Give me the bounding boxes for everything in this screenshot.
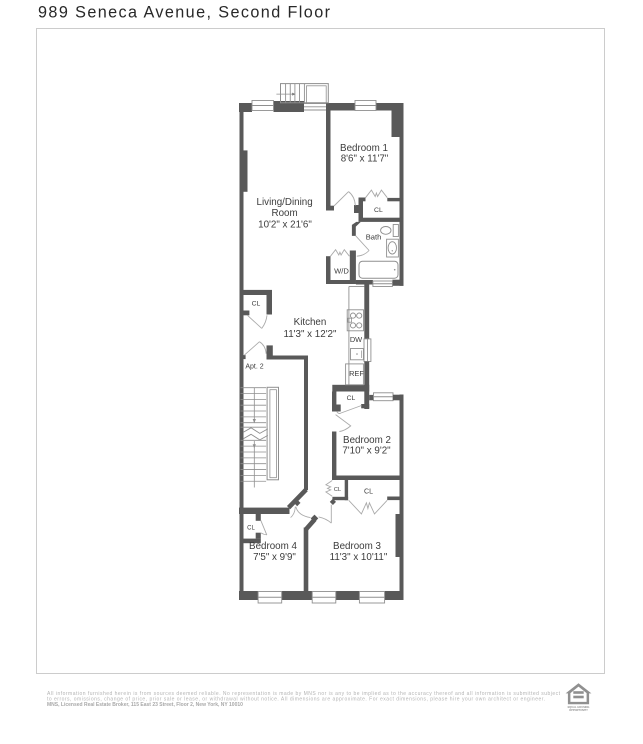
svg-text:Bedroom 1: Bedroom 1 xyxy=(340,143,388,154)
svg-text:Bedroom 2: Bedroom 2 xyxy=(343,435,391,446)
svg-text:Living/Dining: Living/Dining xyxy=(257,197,313,208)
svg-text:Apt. 2: Apt. 2 xyxy=(245,364,263,371)
svg-text:CL: CL xyxy=(247,525,255,531)
svg-text:OPPORTUNITY: OPPORTUNITY xyxy=(569,708,588,712)
svg-text:10'2" x 21'6": 10'2" x 21'6" xyxy=(258,219,312,230)
svg-text:CL: CL xyxy=(347,395,356,402)
svg-text:Bedroom 3: Bedroom 3 xyxy=(333,541,381,552)
svg-text:Bath: Bath xyxy=(366,233,382,242)
svg-text:Kitchen: Kitchen xyxy=(294,317,327,328)
svg-text:8'6" x 11'7": 8'6" x 11'7" xyxy=(341,154,389,165)
svg-text:11'3" x 12'2": 11'3" x 12'2" xyxy=(283,329,337,340)
svg-text:REF: REF xyxy=(349,369,364,378)
svg-text:CL: CL xyxy=(374,207,383,214)
svg-text:W/D: W/D xyxy=(334,267,349,276)
svg-text:7'10" x 9'2": 7'10" x 9'2" xyxy=(342,446,391,457)
svg-text:DW: DW xyxy=(350,335,362,344)
svg-text:Room: Room xyxy=(272,208,298,219)
svg-text:7'5" x 9'9": 7'5" x 9'9" xyxy=(253,552,296,563)
svg-text:Bedroom 4: Bedroom 4 xyxy=(249,541,297,552)
svg-text:MNS, Licensed Real Estate Brok: MNS, Licensed Real Estate Broker, 115 Ea… xyxy=(47,702,243,708)
svg-text:11'3" x 10'11": 11'3" x 10'11" xyxy=(330,552,388,563)
svg-text:CL: CL xyxy=(334,487,341,493)
svg-text:CL: CL xyxy=(364,489,373,496)
svg-text:CL: CL xyxy=(252,301,261,308)
